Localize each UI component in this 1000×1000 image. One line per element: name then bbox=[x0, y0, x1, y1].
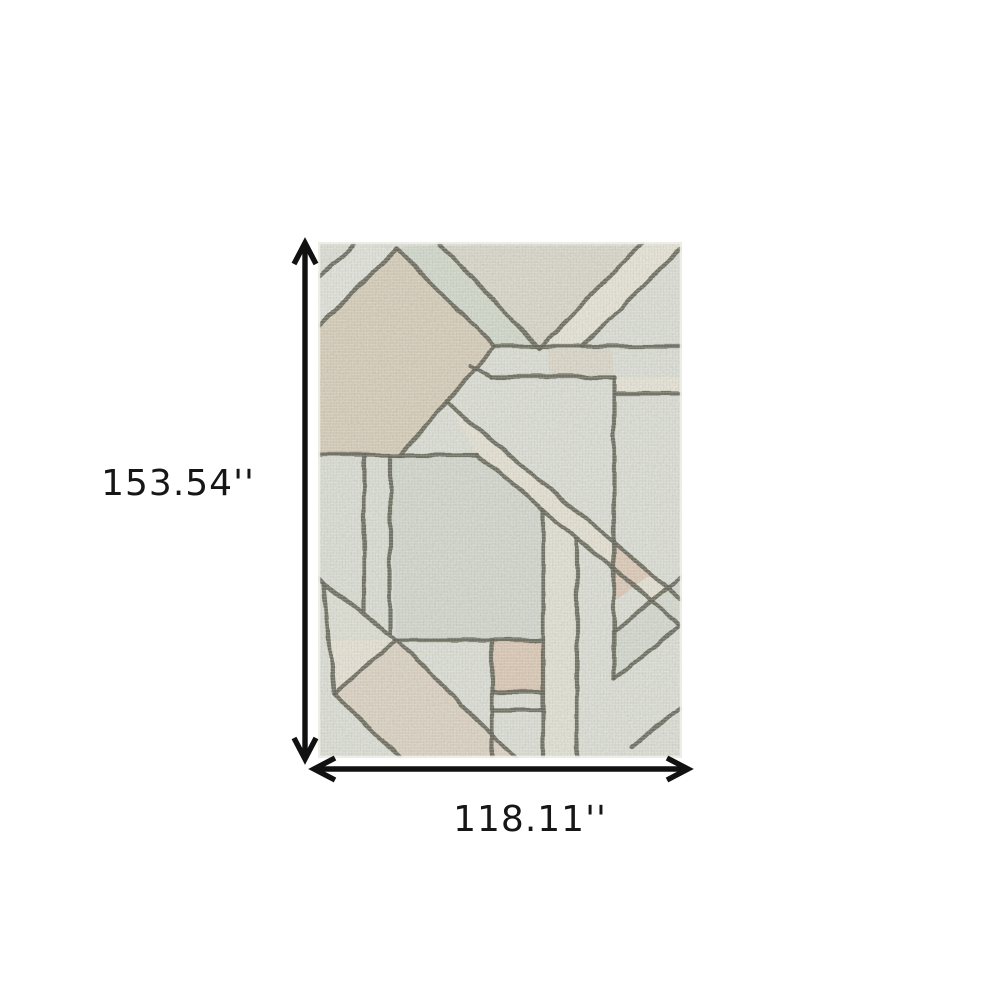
horizontal-dimension-arrow-icon bbox=[314, 758, 688, 780]
height-dimension-label: 153.54'' bbox=[38, 462, 318, 506]
rug-image bbox=[318, 242, 682, 758]
noise-texture bbox=[318, 242, 682, 758]
product-dimension-image: 153.54'' 118.11'' bbox=[0, 0, 1000, 1000]
width-dimension-label: 118.11'' bbox=[390, 798, 670, 842]
